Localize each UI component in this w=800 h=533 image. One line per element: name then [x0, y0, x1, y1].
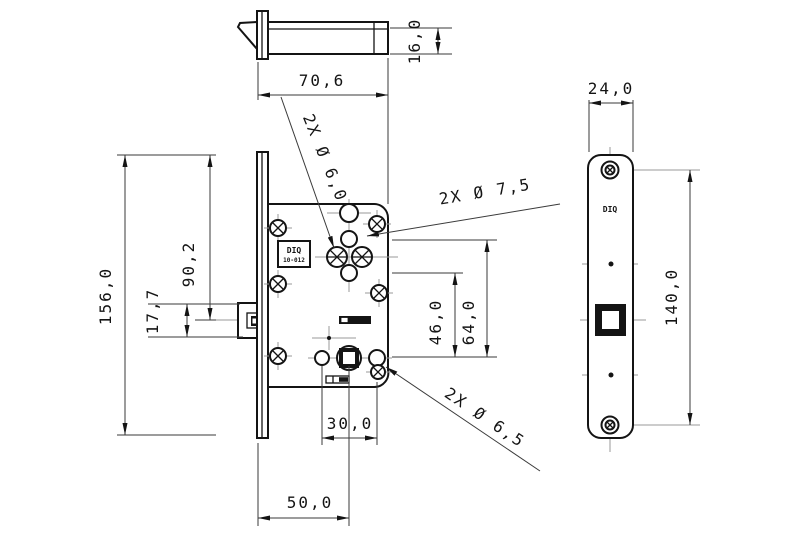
- latch-body: [268, 22, 388, 54]
- dim-latch-bolt-height: 17,7: [143, 288, 162, 335]
- bottom-hole-left: [315, 351, 329, 365]
- screw-head: [352, 247, 372, 267]
- dim-faceplate-screw-spacing: 140,0: [662, 268, 681, 326]
- bottom-hole-right: [369, 350, 385, 366]
- top-hole: [340, 204, 358, 222]
- label-holes-dia-6-0: 2X Ø 6,0: [299, 111, 351, 204]
- center-mark: [327, 336, 331, 340]
- screw-head: [270, 220, 286, 236]
- dim-bottom-hole-spacing: 30,0: [327, 414, 374, 433]
- faceplate-screw-bottom: [602, 417, 619, 434]
- dim-overall-height: 156,0: [96, 267, 115, 325]
- dim-cylinder-to-spindle: 46,0: [426, 299, 445, 346]
- dim-faceplate-width: 24,0: [588, 79, 635, 98]
- top-view-latch: [238, 11, 388, 59]
- dim-hub-to-spindle: 64,0: [459, 299, 478, 346]
- side-view-faceplate: DIQ: [580, 147, 700, 452]
- hub-hole-upper: [341, 231, 357, 247]
- latch-bevel-tip: [238, 22, 257, 49]
- dim-latch-center-from-top: 90,2: [179, 241, 198, 288]
- hub-hole-lower: [341, 265, 357, 281]
- brand-logo-text: DIQ: [287, 246, 302, 255]
- brand-stamp: DIQ 10-012: [278, 241, 310, 267]
- mortise-lock-drawing: DIQ 10-012: [0, 0, 800, 533]
- label-holes-dia-7-5: 2X Ø 7,5: [438, 175, 533, 209]
- dim-latch-body-height: 16,0: [405, 18, 424, 65]
- latch-opening: [595, 304, 626, 336]
- screw-head: [327, 247, 347, 267]
- dim-case-depth: 70,6: [299, 71, 346, 90]
- screw-head: [270, 348, 286, 364]
- faceplate-plate: [588, 155, 633, 438]
- screw-head: [270, 276, 286, 292]
- label-holes-dia-6-5: 2X Ø 6,5: [441, 384, 529, 452]
- faceplate-brand-text: DIQ: [603, 205, 618, 214]
- technical-drawing-page: DIQ 10-012: [0, 0, 800, 533]
- front-view-lock-case: DIQ 10-012: [202, 152, 398, 438]
- small-hole-upper: [609, 262, 614, 267]
- screw-head: [371, 365, 385, 379]
- screw-head: [369, 216, 385, 232]
- faceplate-screw-top: [602, 162, 619, 179]
- dim-backset: 50,0: [287, 493, 334, 512]
- small-hole-lower: [609, 373, 614, 378]
- screw-head: [371, 285, 387, 301]
- brand-model-text: 10-012: [283, 257, 305, 264]
